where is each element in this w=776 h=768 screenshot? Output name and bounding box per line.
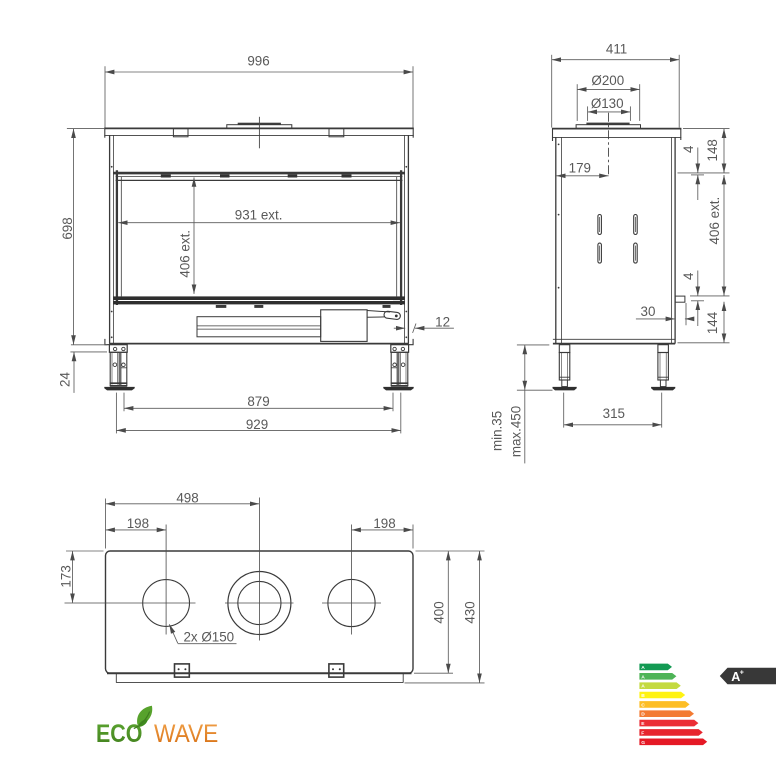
svg-text:12: 12 [435,314,450,329]
svg-text:Ø130: Ø130 [591,96,624,111]
svg-text:G: G [641,740,645,746]
svg-text:C: C [641,702,645,708]
svg-text:400: 400 [431,601,446,623]
svg-text:4: 4 [681,145,696,153]
svg-text:A: A [641,665,645,671]
svg-text:929: 929 [246,417,268,432]
svg-text:931 ext.: 931 ext. [235,207,283,222]
svg-text:4: 4 [681,272,696,280]
svg-text:498: 498 [176,490,198,505]
svg-text:A: A [641,684,645,690]
svg-text:24: 24 [57,372,72,387]
svg-text:406 ext.: 406 ext. [177,230,192,278]
svg-text:315: 315 [603,406,625,421]
svg-text:430: 430 [463,601,478,623]
svg-text:B: B [641,693,645,699]
svg-text:173: 173 [59,565,74,587]
svg-text:WAVE: WAVE [154,720,218,748]
svg-text:406 ext.: 406 ext. [707,197,722,245]
svg-text:198: 198 [373,516,395,531]
svg-text:Ø200: Ø200 [591,73,624,88]
svg-text:2x Ø150: 2x Ø150 [183,629,234,644]
svg-text:D: D [641,712,645,718]
svg-text:179: 179 [569,161,591,176]
svg-text:ECO: ECO [96,720,142,748]
svg-text:F: F [641,730,644,736]
svg-text:max.450: max.450 [508,406,523,457]
svg-text:+: + [740,670,744,677]
svg-text:144: 144 [705,311,720,334]
svg-text:148: 148 [705,139,720,161]
svg-text:min.35: min.35 [490,411,505,451]
svg-text:198: 198 [127,516,149,531]
svg-text:411: 411 [606,42,627,57]
svg-text:30: 30 [641,304,656,319]
svg-text:879: 879 [247,394,269,409]
svg-text:A: A [641,674,645,680]
svg-text:996: 996 [247,53,269,68]
svg-text:698: 698 [60,217,75,239]
